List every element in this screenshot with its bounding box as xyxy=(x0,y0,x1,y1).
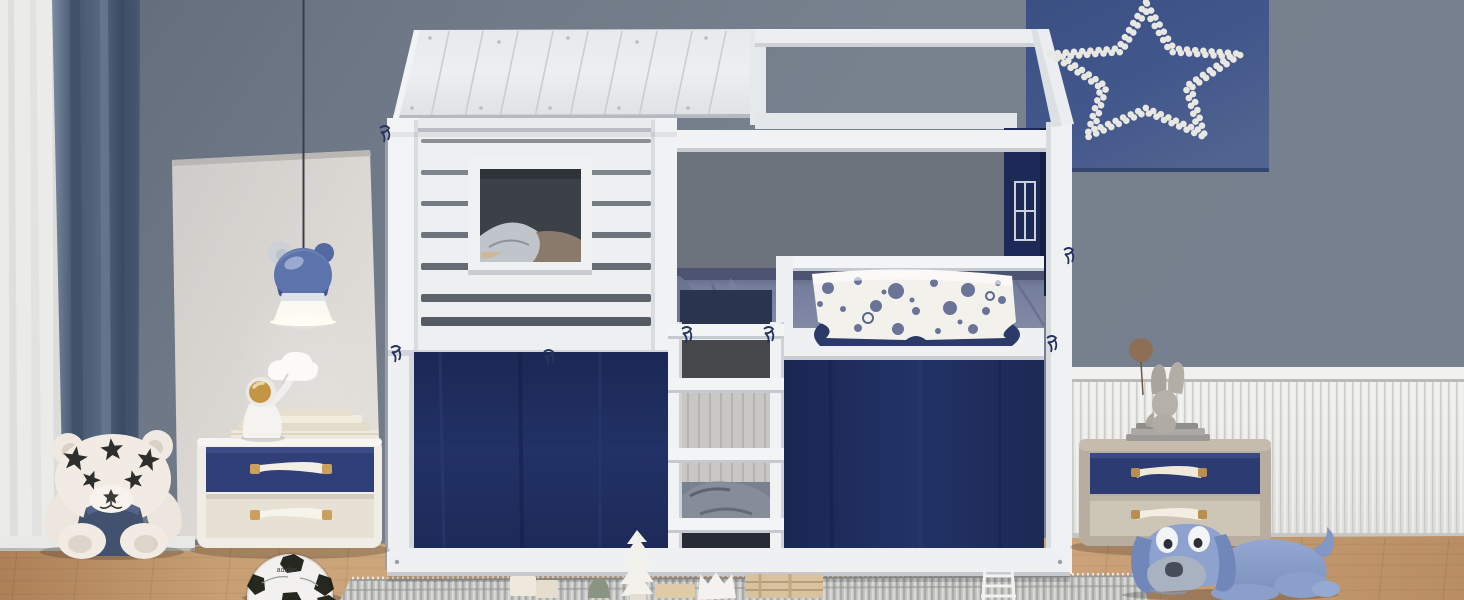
svg-text:adidas: adidas xyxy=(277,567,298,574)
